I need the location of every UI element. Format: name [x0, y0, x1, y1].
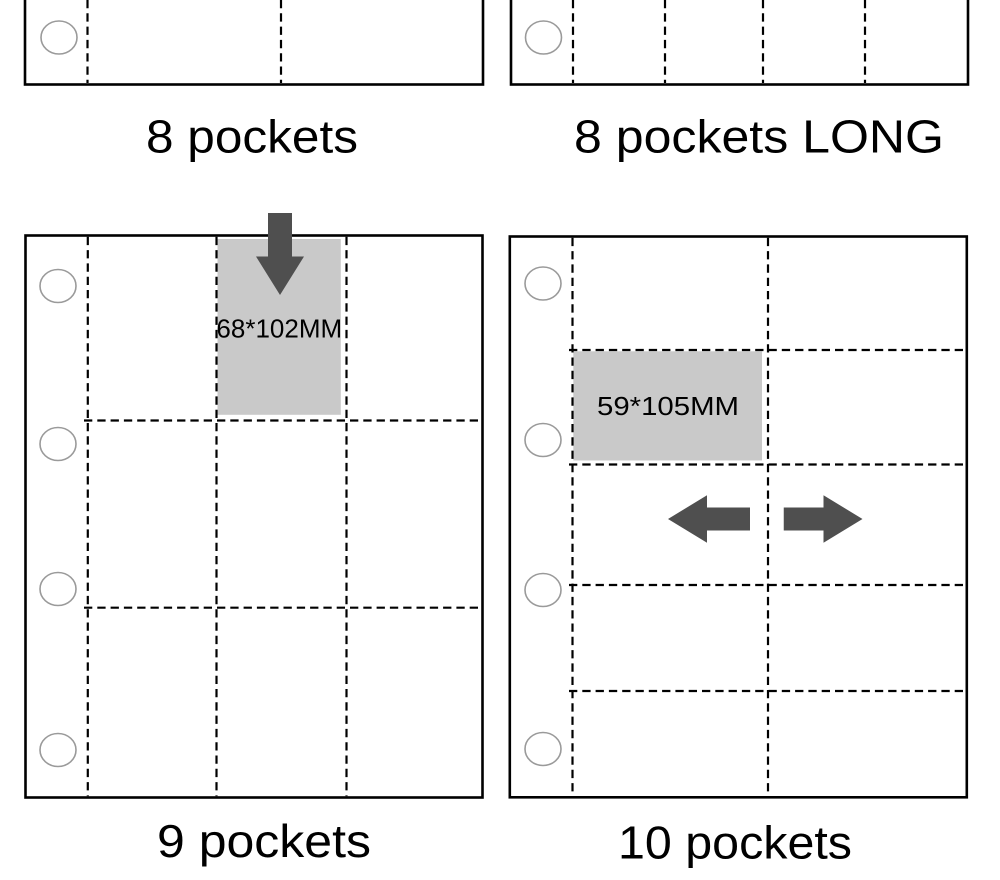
svg-text:8 pockets: 8 pockets	[146, 111, 358, 163]
svg-text:8 pockets LONG: 8 pockets LONG	[574, 111, 944, 163]
svg-text:59*105MM: 59*105MM	[597, 391, 739, 421]
svg-text:9 pockets: 9 pockets	[157, 815, 371, 867]
svg-text:10 pockets: 10 pockets	[618, 817, 852, 869]
svg-text:68*102MM: 68*102MM	[216, 313, 342, 343]
